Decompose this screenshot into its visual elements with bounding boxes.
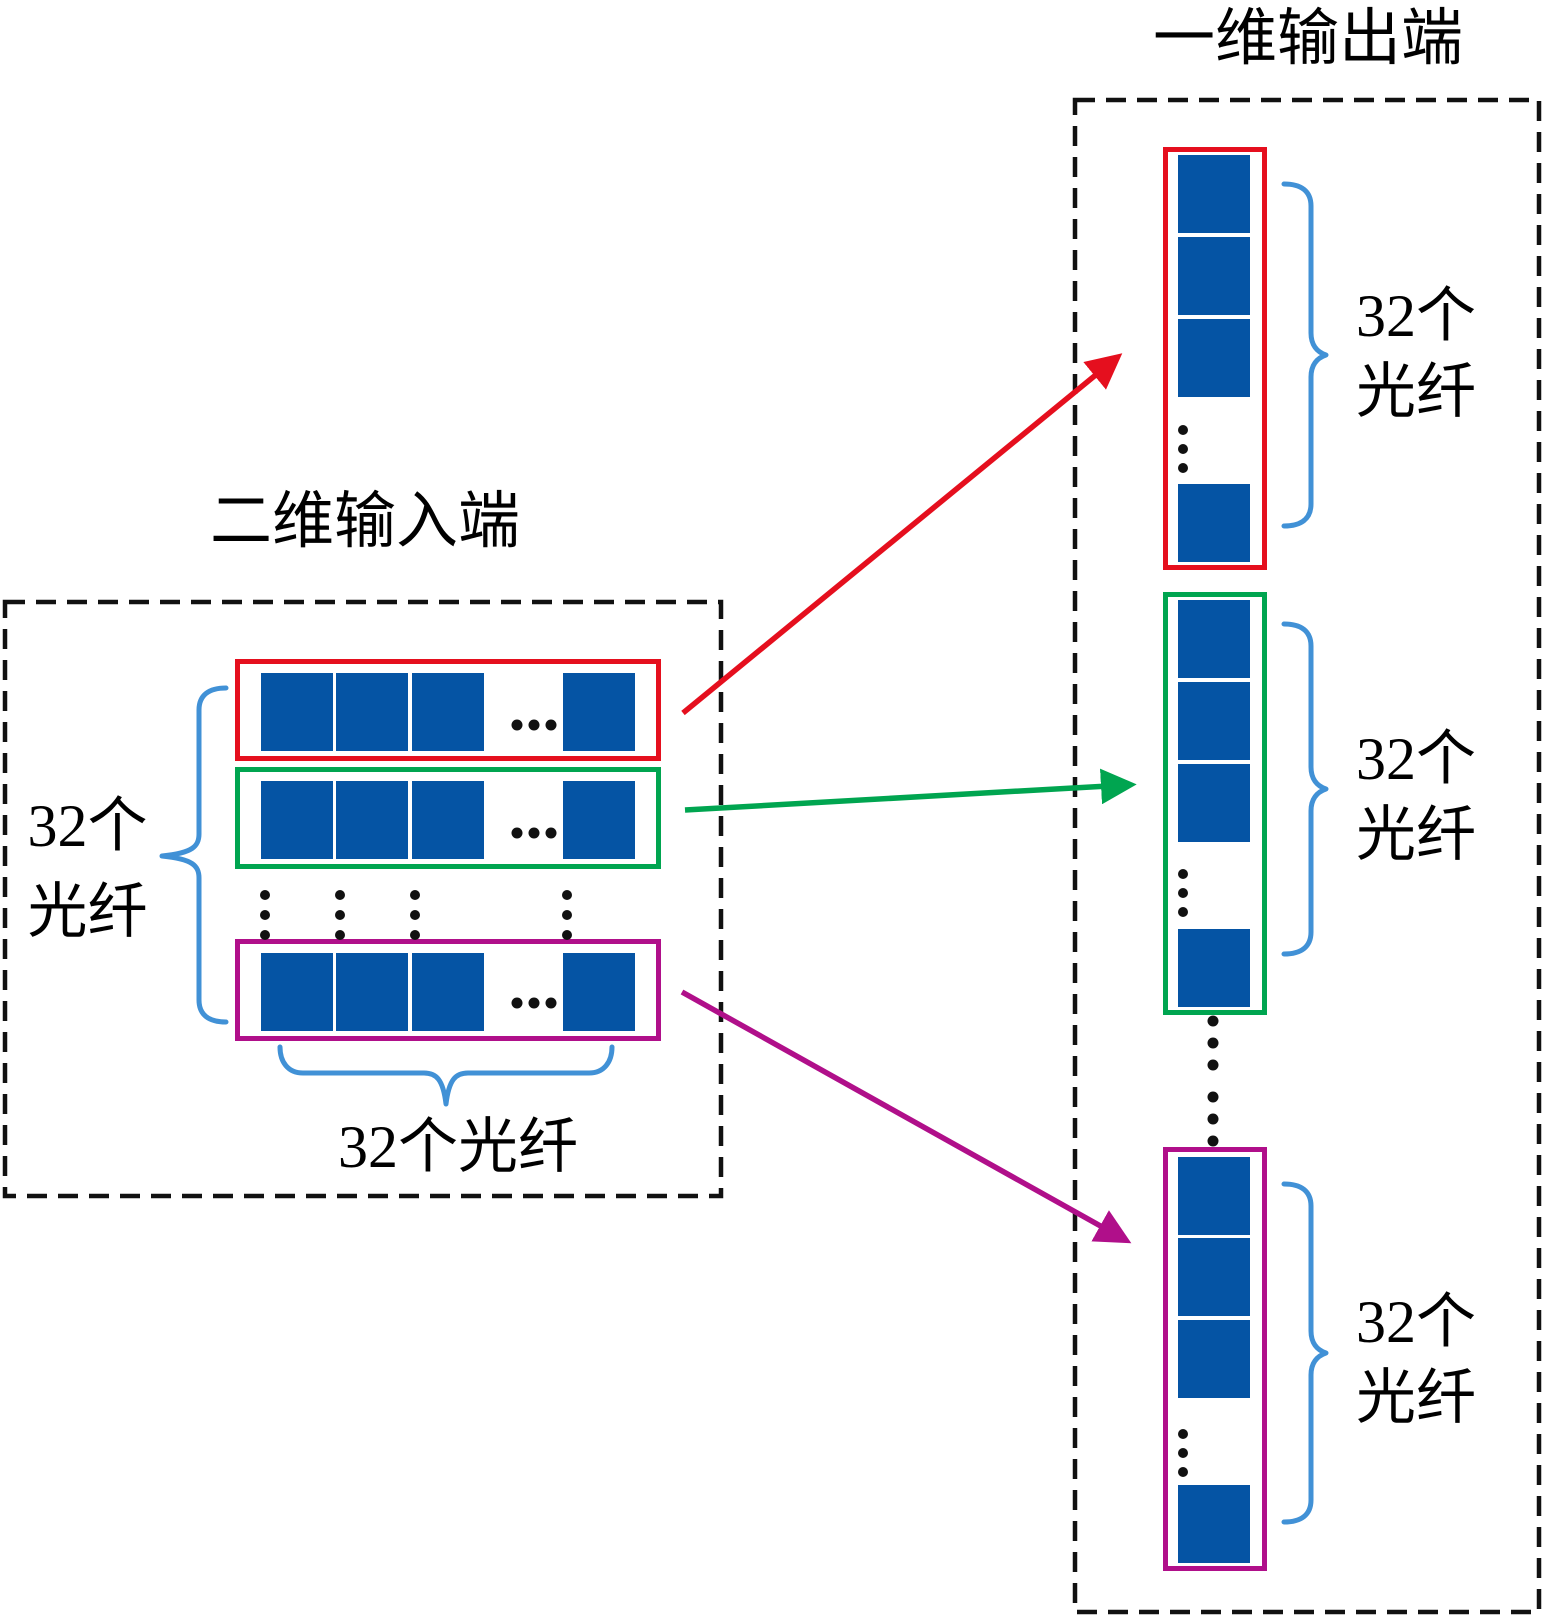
input-side-brace bbox=[162, 688, 226, 1022]
input-side-fiber-label: 32个 光纤 bbox=[5, 783, 170, 955]
fiber-square bbox=[336, 673, 408, 751]
fiber-square bbox=[563, 673, 635, 751]
output-brace-2 bbox=[1284, 624, 1326, 954]
figure-overlay bbox=[0, 0, 1545, 1620]
output-fiber-label-2-line1: 32个 bbox=[1336, 721, 1496, 797]
input-side-fiber-label-line1: 32个 bbox=[5, 783, 170, 869]
fiber-square bbox=[261, 673, 333, 751]
fiber-square bbox=[261, 953, 333, 1031]
output-fiber-label-3: 32个 光纤 bbox=[1336, 1284, 1496, 1436]
fiber-square bbox=[1178, 764, 1250, 842]
input-row-magenta bbox=[235, 939, 661, 1041]
fiber-square bbox=[1178, 682, 1250, 760]
fiber-square bbox=[1178, 1485, 1250, 1563]
fiber-square bbox=[412, 781, 484, 859]
output-fiber-label-1-line2: 光纤 bbox=[1336, 354, 1496, 430]
fiber-square bbox=[1178, 1320, 1250, 1398]
output-brace-1 bbox=[1284, 184, 1326, 526]
output-fiber-label-3-line2: 光纤 bbox=[1336, 1360, 1496, 1436]
fiber-square bbox=[1178, 600, 1250, 678]
fiber-square bbox=[412, 673, 484, 751]
fiber-square bbox=[1178, 155, 1250, 233]
mapping-arrow-magenta bbox=[682, 992, 1122, 1238]
fiber-square bbox=[1178, 319, 1250, 397]
fiber-square bbox=[261, 781, 333, 859]
output-strip-green bbox=[1163, 592, 1267, 1015]
fiber-square bbox=[1178, 237, 1250, 315]
fiber-mapping-figure: 二维输入端 一维输出端 32个 光纤 bbox=[0, 0, 1545, 1620]
fiber-square bbox=[1178, 484, 1250, 562]
fiber-square bbox=[1178, 929, 1250, 1007]
input-panel-title: 二维输入端 bbox=[115, 489, 615, 555]
output-panel-title: 一维输出端 bbox=[1058, 6, 1545, 72]
input-row-green bbox=[235, 767, 661, 869]
fiber-square bbox=[563, 781, 635, 859]
output-strip-magenta bbox=[1163, 1147, 1267, 1571]
mapping-arrow-red bbox=[683, 360, 1114, 713]
output-fiber-label-1-line1: 32个 bbox=[1336, 278, 1496, 354]
fiber-square bbox=[563, 953, 635, 1031]
input-bottom-brace bbox=[280, 1047, 612, 1104]
output-fiber-label-2-line2: 光纤 bbox=[1336, 797, 1496, 873]
fiber-square bbox=[1178, 1157, 1250, 1235]
output-fiber-label-1: 32个 光纤 bbox=[1336, 278, 1496, 430]
fiber-square bbox=[336, 953, 408, 1031]
fiber-square bbox=[336, 781, 408, 859]
fiber-square bbox=[412, 953, 484, 1031]
output-fiber-label-3-line1: 32个 bbox=[1336, 1284, 1496, 1360]
input-side-fiber-label-line2: 光纤 bbox=[5, 869, 170, 955]
input-bottom-fiber-label: 32个光纤 bbox=[258, 1116, 658, 1178]
output-strip-red bbox=[1163, 147, 1267, 570]
input-row-red bbox=[235, 659, 661, 761]
fiber-square bbox=[1178, 1238, 1250, 1316]
output-fiber-label-2: 32个 光纤 bbox=[1336, 721, 1496, 873]
output-brace-3 bbox=[1284, 1184, 1326, 1522]
mapping-arrow-green bbox=[685, 785, 1126, 810]
